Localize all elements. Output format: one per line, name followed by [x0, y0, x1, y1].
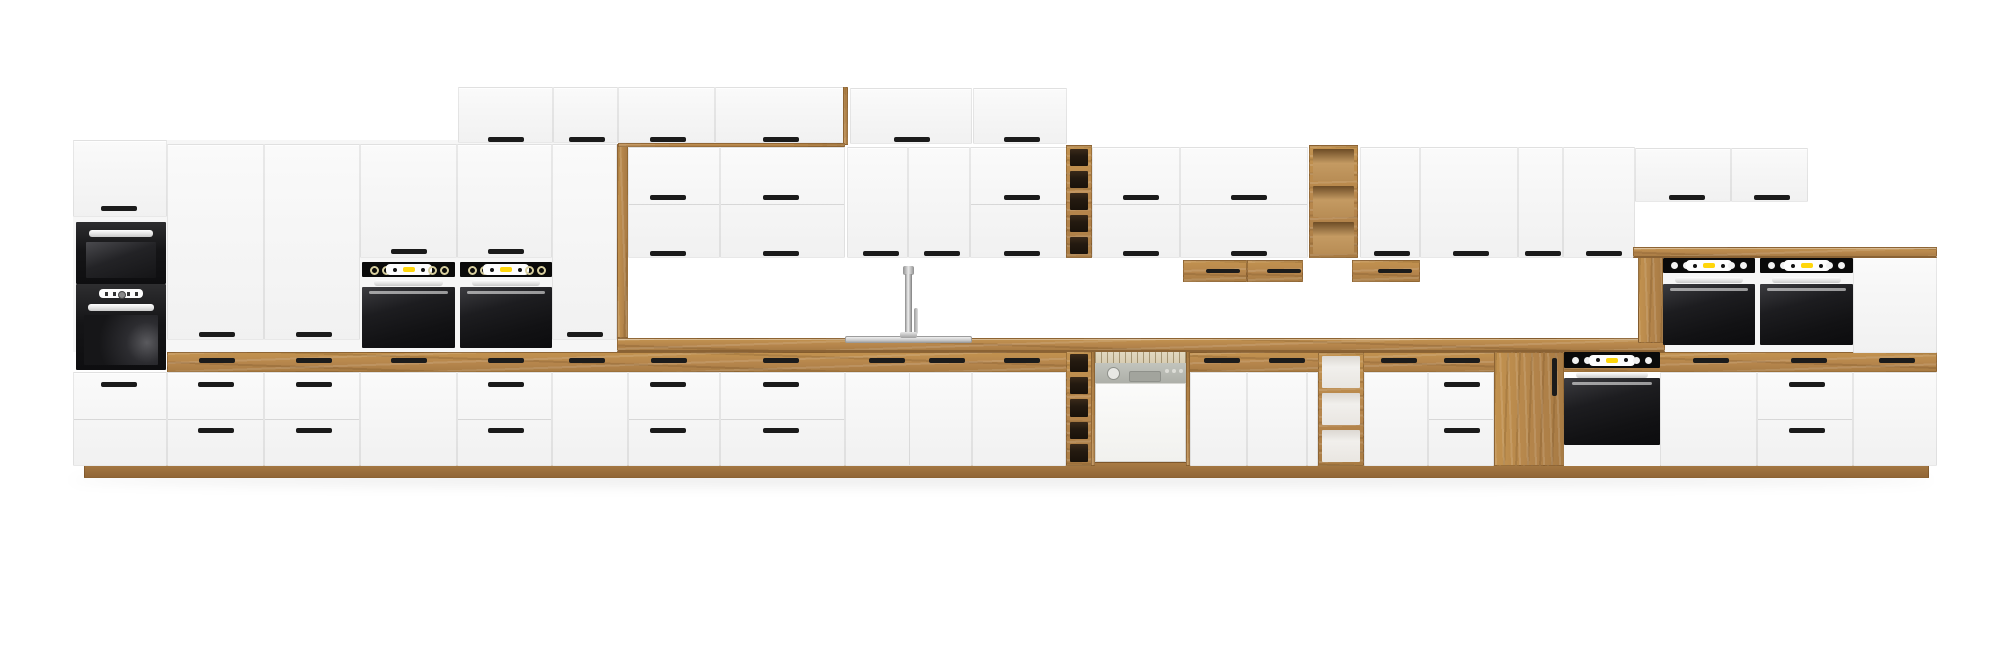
- display-dot-icon: [1693, 264, 1697, 268]
- oak-drawer-band: [167, 352, 1937, 372]
- base-door-unit: [360, 372, 457, 466]
- door-handle: [391, 249, 427, 254]
- over-oven-door: [457, 144, 552, 258]
- oven-handle-bar: [88, 304, 154, 311]
- door-handle: [763, 137, 799, 142]
- door-handle: [651, 358, 687, 363]
- oven-door: [1564, 378, 1660, 445]
- oven-knob-icon: [468, 266, 477, 275]
- door-handle: [1231, 195, 1267, 200]
- base-door-unit: [972, 372, 1066, 466]
- oven-door: [362, 287, 455, 348]
- door-handle: [1123, 195, 1159, 200]
- oven-door: [1760, 284, 1853, 345]
- display-knob-icon: [118, 291, 126, 299]
- oven-control-panel: [1564, 352, 1660, 368]
- door-handle: [1206, 269, 1240, 273]
- base-drawer-unit: [628, 372, 720, 466]
- oven-knob-icon: [1645, 357, 1652, 364]
- wall-open-shelf-narrow: [1066, 145, 1092, 258]
- shelf-compartment: [1070, 237, 1088, 254]
- shelf-compartment: [1070, 422, 1088, 440]
- wall-tall-door: [847, 147, 908, 258]
- oven-knob-icon: [1671, 262, 1678, 269]
- oven-bottom-filler: [1564, 445, 1660, 466]
- oven-door: [460, 287, 552, 348]
- door-handle: [296, 382, 332, 387]
- panel-gap: [1093, 204, 1179, 205]
- base-drawer-unit: [264, 372, 360, 466]
- door-handle: [1693, 358, 1729, 363]
- oven-knob-icon: [1826, 262, 1833, 269]
- door-handle: [763, 382, 799, 387]
- door-handle: [198, 382, 234, 387]
- raised-tall-door: [1853, 257, 1937, 353]
- tower-built-in-oven: [76, 284, 166, 370]
- wall-stacked-doors: [720, 147, 845, 258]
- oven-knob-icon: [1633, 357, 1640, 364]
- shelf-cells: [1322, 356, 1360, 462]
- door-handle: [1444, 428, 1480, 433]
- panel-gap: [1758, 419, 1852, 420]
- panel-gap: [168, 419, 263, 420]
- dishwasher-body: [1095, 350, 1186, 466]
- pantry-oak-door: [1494, 352, 1564, 466]
- oven-handle-bar: [374, 280, 443, 286]
- wall-open-shelf: [1309, 145, 1358, 258]
- oven-display: [99, 289, 143, 298]
- door-handle: [567, 332, 603, 337]
- door-handle: [488, 428, 524, 433]
- door-handle: [1123, 251, 1159, 256]
- display-dot-icon: [518, 268, 522, 272]
- base-oven-tower-drawers: [73, 372, 167, 466]
- door-handle: [101, 382, 137, 387]
- door-handle: [296, 358, 332, 363]
- door-handle: [763, 195, 799, 200]
- shelf-cells: [1313, 149, 1354, 254]
- shelf-compartment: [1313, 149, 1354, 181]
- door-handle: [763, 251, 799, 256]
- base-drawer-unit: [457, 372, 552, 466]
- display-dot-icon: [1624, 358, 1628, 362]
- display-yellow-icon: [1606, 358, 1618, 363]
- door-handle: [1374, 251, 1410, 256]
- display-yellow-icon: [403, 267, 415, 272]
- door-handle: [763, 428, 799, 433]
- door-handle: [863, 251, 899, 256]
- shelf-compartment: [1070, 399, 1088, 417]
- shelf-compartment: [1313, 222, 1354, 254]
- raised-oak-side-panel: [1638, 257, 1663, 343]
- shelf-compartment: [1322, 393, 1360, 425]
- door-handle: [1586, 251, 1622, 256]
- wall-tall-door: [1563, 147, 1635, 258]
- kitchen-render: 3D product render of a long modular kitc…: [0, 0, 2000, 662]
- panel-gap: [458, 419, 551, 420]
- door-handle: [1004, 358, 1040, 363]
- door-handle: [1789, 382, 1825, 387]
- top-wall-door: [973, 88, 1067, 144]
- door-handle: [199, 332, 235, 337]
- door-handle: [869, 358, 905, 363]
- oven-handle-bar: [1675, 277, 1743, 283]
- display-tick-icon: [105, 292, 108, 296]
- base-open-shelf: [1318, 352, 1364, 466]
- oven-knob-icon: [525, 266, 534, 275]
- oven-knob-icon: [1740, 262, 1747, 269]
- oven-door-highlight: [1572, 382, 1653, 385]
- door-handle: [1444, 358, 1480, 363]
- display-dot-icon: [1596, 358, 1600, 362]
- dishwasher-button-icon: [1172, 369, 1176, 373]
- oven-door: [1663, 284, 1755, 345]
- oven-control-panel: [1760, 258, 1853, 273]
- base-filler-door: [1307, 372, 1318, 466]
- shelf-compartment: [1070, 354, 1088, 372]
- oven-control-panel: [362, 262, 455, 277]
- wall-tall-door: [1360, 147, 1420, 258]
- oven-handle-bar: [1772, 277, 1841, 283]
- oven-knob-icon: [428, 266, 437, 275]
- door-handle: [1525, 251, 1561, 256]
- door-handle-vertical: [1552, 358, 1557, 396]
- door-handle: [929, 358, 965, 363]
- wall-stacked-doors: [628, 147, 720, 258]
- base-door-unit: [552, 372, 628, 466]
- display-dot-icon: [421, 268, 425, 272]
- top-wall-door: [715, 87, 845, 143]
- oven-knob-icon: [1838, 262, 1845, 269]
- dishwasher-button-icon: [1165, 369, 1169, 373]
- top-right-wall-door: [1731, 148, 1808, 202]
- oven-knob-icon: [537, 266, 546, 275]
- panel-gap: [629, 419, 719, 420]
- panel-gap: [721, 204, 844, 205]
- display-dot-icon: [1721, 264, 1725, 268]
- panel-gap: [721, 419, 844, 420]
- display-dot-icon: [490, 268, 494, 272]
- door-handle: [1378, 269, 1412, 273]
- oak-wall-box: [1352, 260, 1420, 282]
- base-door-unit: [1364, 372, 1428, 466]
- oak-end-panel: [617, 144, 628, 338]
- oven-display: [1686, 260, 1732, 271]
- dishwasher-control-panel: [1095, 363, 1186, 383]
- oven-display: [483, 264, 529, 275]
- top-wall-door: [850, 88, 972, 144]
- dishwasher-button-icon: [1179, 369, 1183, 373]
- wall-tall-door: [1420, 147, 1518, 258]
- faucet: [898, 266, 920, 338]
- door-handle: [488, 249, 524, 254]
- door-handle: [650, 428, 686, 433]
- tall-door: [167, 144, 264, 340]
- top-wall-door: [458, 87, 553, 143]
- shelf-compartment: [1070, 171, 1088, 188]
- oven-handle-bar: [472, 280, 540, 286]
- oven-knob-icon: [1768, 262, 1775, 269]
- countertop: [1633, 247, 1937, 258]
- display-dot-icon: [1791, 264, 1795, 268]
- tall-door: [552, 144, 617, 340]
- tower-top-door: [73, 140, 167, 217]
- shelf-compartment: [1070, 444, 1088, 462]
- door-handle: [1444, 382, 1480, 387]
- dishwasher-door: [1095, 383, 1186, 462]
- door-handle: [569, 358, 605, 363]
- panel-gap: [265, 419, 359, 420]
- oven-window: [84, 315, 158, 365]
- base-door-unit: [1247, 372, 1307, 466]
- raised-base-door: [1660, 372, 1757, 466]
- over-oven-door: [360, 144, 457, 258]
- display-yellow-icon: [1801, 263, 1813, 268]
- door-handle: [391, 358, 427, 363]
- countertop: [617, 338, 1665, 352]
- door-handle: [650, 382, 686, 387]
- door-handle: [101, 206, 137, 211]
- door-handle: [1669, 195, 1705, 200]
- shelf-compartment: [1070, 193, 1088, 210]
- dishwasher-knob-icon: [1107, 367, 1120, 380]
- panel-gap: [74, 419, 166, 420]
- shelf-cells: [1070, 354, 1088, 462]
- microwave-window: [86, 242, 156, 278]
- oven-door-highlight: [369, 291, 447, 294]
- dishwasher-handle-recess: [1129, 371, 1161, 382]
- door-handle: [924, 251, 960, 256]
- base-drawer-unit: [1428, 372, 1494, 466]
- base-open-shelf-narrow: [1066, 350, 1092, 466]
- faucet-base: [900, 332, 917, 338]
- door-handle: [296, 332, 332, 337]
- base-door-unit: [1190, 372, 1247, 466]
- oven-door-highlight: [1670, 288, 1747, 291]
- shelf-compartment: [1070, 377, 1088, 395]
- door-handle: [488, 137, 524, 142]
- wall-stacked-doors: [1180, 147, 1308, 258]
- door-handle: [1267, 269, 1301, 273]
- panel-gap: [629, 204, 719, 205]
- door-handle: [1789, 428, 1825, 433]
- shelf-compartment: [1070, 149, 1088, 166]
- door-handle: [569, 137, 605, 142]
- display-tick-icon: [135, 292, 138, 296]
- oak-wall-box: [1247, 260, 1303, 282]
- oven-door-highlight: [467, 291, 544, 294]
- top-wall-door: [618, 87, 715, 143]
- wall-stacked-doors: [970, 147, 1067, 258]
- door-handle: [198, 428, 234, 433]
- oven-door-highlight: [1767, 288, 1845, 291]
- oven-display: [1784, 260, 1830, 271]
- door-handle: [894, 137, 930, 142]
- tall-door: [264, 144, 360, 340]
- shelf-compartment: [1313, 186, 1354, 218]
- door-handle: [650, 195, 686, 200]
- dishwasher-side-panel: [1186, 350, 1190, 466]
- oak-wall-box: [1183, 260, 1247, 282]
- door-handle: [1754, 195, 1790, 200]
- top-wall-door: [553, 87, 618, 143]
- display-yellow-icon: [1703, 263, 1715, 268]
- oven-control-panel: [460, 262, 552, 277]
- panel-gap: [1181, 204, 1307, 205]
- shelf-cells: [1070, 149, 1088, 254]
- door-handle: [763, 358, 799, 363]
- display-yellow-icon: [500, 267, 512, 272]
- oven-knob-icon: [1572, 357, 1579, 364]
- door-handle: [650, 137, 686, 142]
- door-handle: [1004, 137, 1040, 142]
- display-tick-icon: [113, 292, 116, 296]
- shelf-compartment: [1070, 215, 1088, 232]
- sink-base-doors: [845, 372, 972, 466]
- door-handle: [1004, 251, 1040, 256]
- door-handle: [1879, 358, 1915, 363]
- door-handle: [1004, 195, 1040, 200]
- wall-tall-door: [908, 147, 970, 258]
- door-handle: [1381, 358, 1417, 363]
- door-handle: [296, 428, 332, 433]
- display-tick-icon: [127, 292, 130, 296]
- built-in-microwave: [76, 222, 166, 284]
- panel-gap: [909, 373, 910, 465]
- faucet-sprayer: [914, 308, 918, 334]
- door-handle: [650, 251, 686, 256]
- faucet-post: [905, 274, 912, 332]
- door-handle: [488, 382, 524, 387]
- door-handle: [199, 358, 235, 363]
- oven-display: [386, 264, 432, 275]
- wall-tall-door: [1518, 147, 1563, 258]
- door-handle: [1231, 251, 1267, 256]
- door-handle: [488, 358, 524, 363]
- oven-knob-icon: [440, 266, 449, 275]
- oven-control-panel: [1663, 258, 1755, 273]
- raised-base-drawers: [1757, 372, 1853, 466]
- door-handle: [1204, 358, 1240, 363]
- base-drawer-unit: [720, 372, 845, 466]
- oven-knob-icon: [1728, 262, 1735, 269]
- oven-display: [1589, 355, 1635, 366]
- shelf-compartment: [1322, 430, 1360, 462]
- door-handle: [1269, 358, 1305, 363]
- display-dot-icon: [1819, 264, 1823, 268]
- base-drawer-unit: [167, 372, 264, 466]
- oven-knob-icon: [370, 266, 379, 275]
- panel-gap: [971, 204, 1066, 205]
- door-handle: [1791, 358, 1827, 363]
- microwave-handle-bar: [89, 230, 153, 237]
- shelf-compartment: [1322, 356, 1360, 388]
- raised-base-door: [1853, 372, 1937, 466]
- oak-top-sliver: [843, 87, 848, 145]
- display-dot-icon: [393, 268, 397, 272]
- door-handle: [1453, 251, 1489, 256]
- top-right-wall-door: [1635, 148, 1731, 202]
- panel-gap: [1429, 419, 1493, 420]
- wall-stacked-doors: [1092, 147, 1180, 258]
